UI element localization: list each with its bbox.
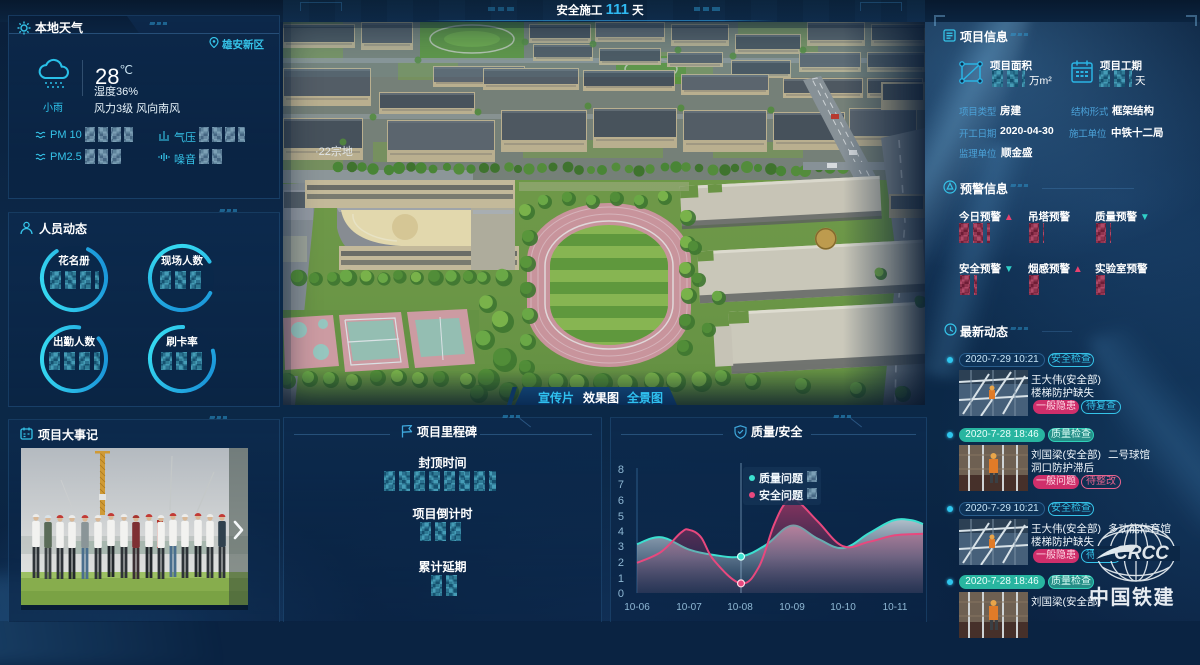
svg-text:2: 2 bbox=[618, 557, 624, 569]
svg-text:8: 8 bbox=[618, 464, 624, 476]
svg-text:3: 3 bbox=[618, 541, 624, 553]
svg-text:10-07: 10-07 bbox=[676, 602, 702, 613]
svg-text:质量问题: 质量问题 bbox=[759, 471, 804, 485]
svg-text:10-10: 10-10 bbox=[830, 602, 856, 613]
svg-text:安全问题: 安全问题 bbox=[759, 488, 804, 502]
svg-text:10-06: 10-06 bbox=[624, 602, 650, 613]
svg-text:0: 0 bbox=[618, 588, 624, 600]
svg-text:5: 5 bbox=[618, 511, 624, 523]
svg-text:10-08: 10-08 bbox=[727, 602, 753, 613]
svg-text:10-11: 10-11 bbox=[883, 602, 908, 613]
svg-text:CRCC: CRCC bbox=[1114, 543, 1169, 564]
svg-text:7: 7 bbox=[618, 479, 624, 491]
svg-text:1: 1 bbox=[618, 573, 624, 585]
svg-text:10-09: 10-09 bbox=[779, 602, 805, 613]
svg-text:6: 6 bbox=[618, 495, 624, 507]
svg-text:4: 4 bbox=[618, 526, 624, 538]
